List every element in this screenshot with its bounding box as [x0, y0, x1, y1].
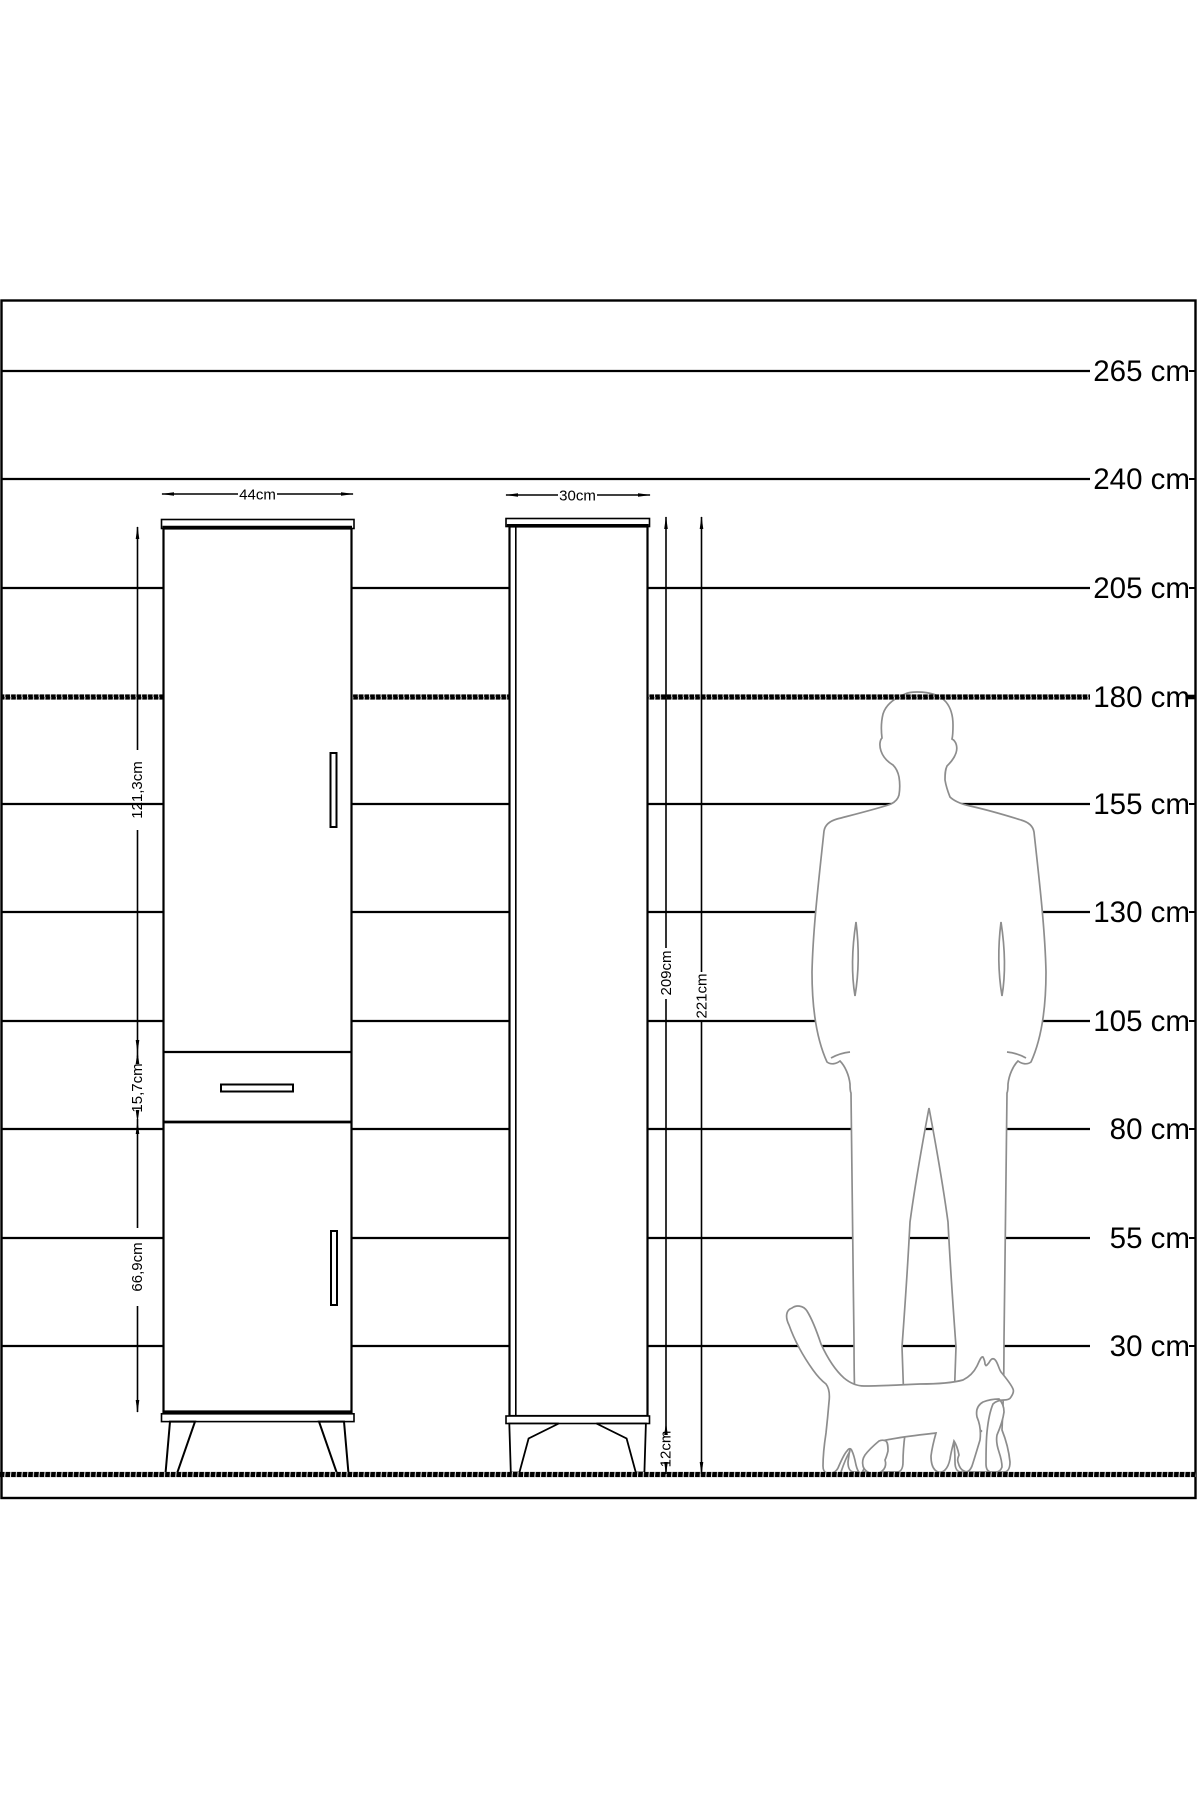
svg-text:66,9cm: 66,9cm	[129, 1242, 146, 1291]
svg-text:209cm: 209cm	[658, 950, 675, 995]
svg-text:155 cm: 155 cm	[1093, 788, 1190, 821]
svg-text:12cm: 12cm	[658, 1431, 675, 1468]
svg-text:121,3cm: 121,3cm	[129, 761, 146, 819]
svg-text:44cm: 44cm	[239, 487, 276, 504]
svg-text:30 cm: 30 cm	[1110, 1330, 1190, 1363]
svg-text:221cm: 221cm	[694, 973, 711, 1018]
svg-text:130 cm: 130 cm	[1093, 896, 1190, 929]
svg-text:80 cm: 80 cm	[1110, 1113, 1190, 1146]
svg-text:55 cm: 55 cm	[1110, 1222, 1190, 1255]
svg-text:105 cm: 105 cm	[1093, 1005, 1190, 1038]
svg-text:180 cm: 180 cm	[1093, 681, 1190, 714]
svg-text:205 cm: 205 cm	[1093, 572, 1190, 605]
svg-text:240 cm: 240 cm	[1093, 463, 1190, 496]
svg-text:30cm: 30cm	[559, 488, 596, 505]
svg-text:15,7cm: 15,7cm	[129, 1063, 146, 1112]
svg-text:265 cm: 265 cm	[1093, 355, 1190, 388]
